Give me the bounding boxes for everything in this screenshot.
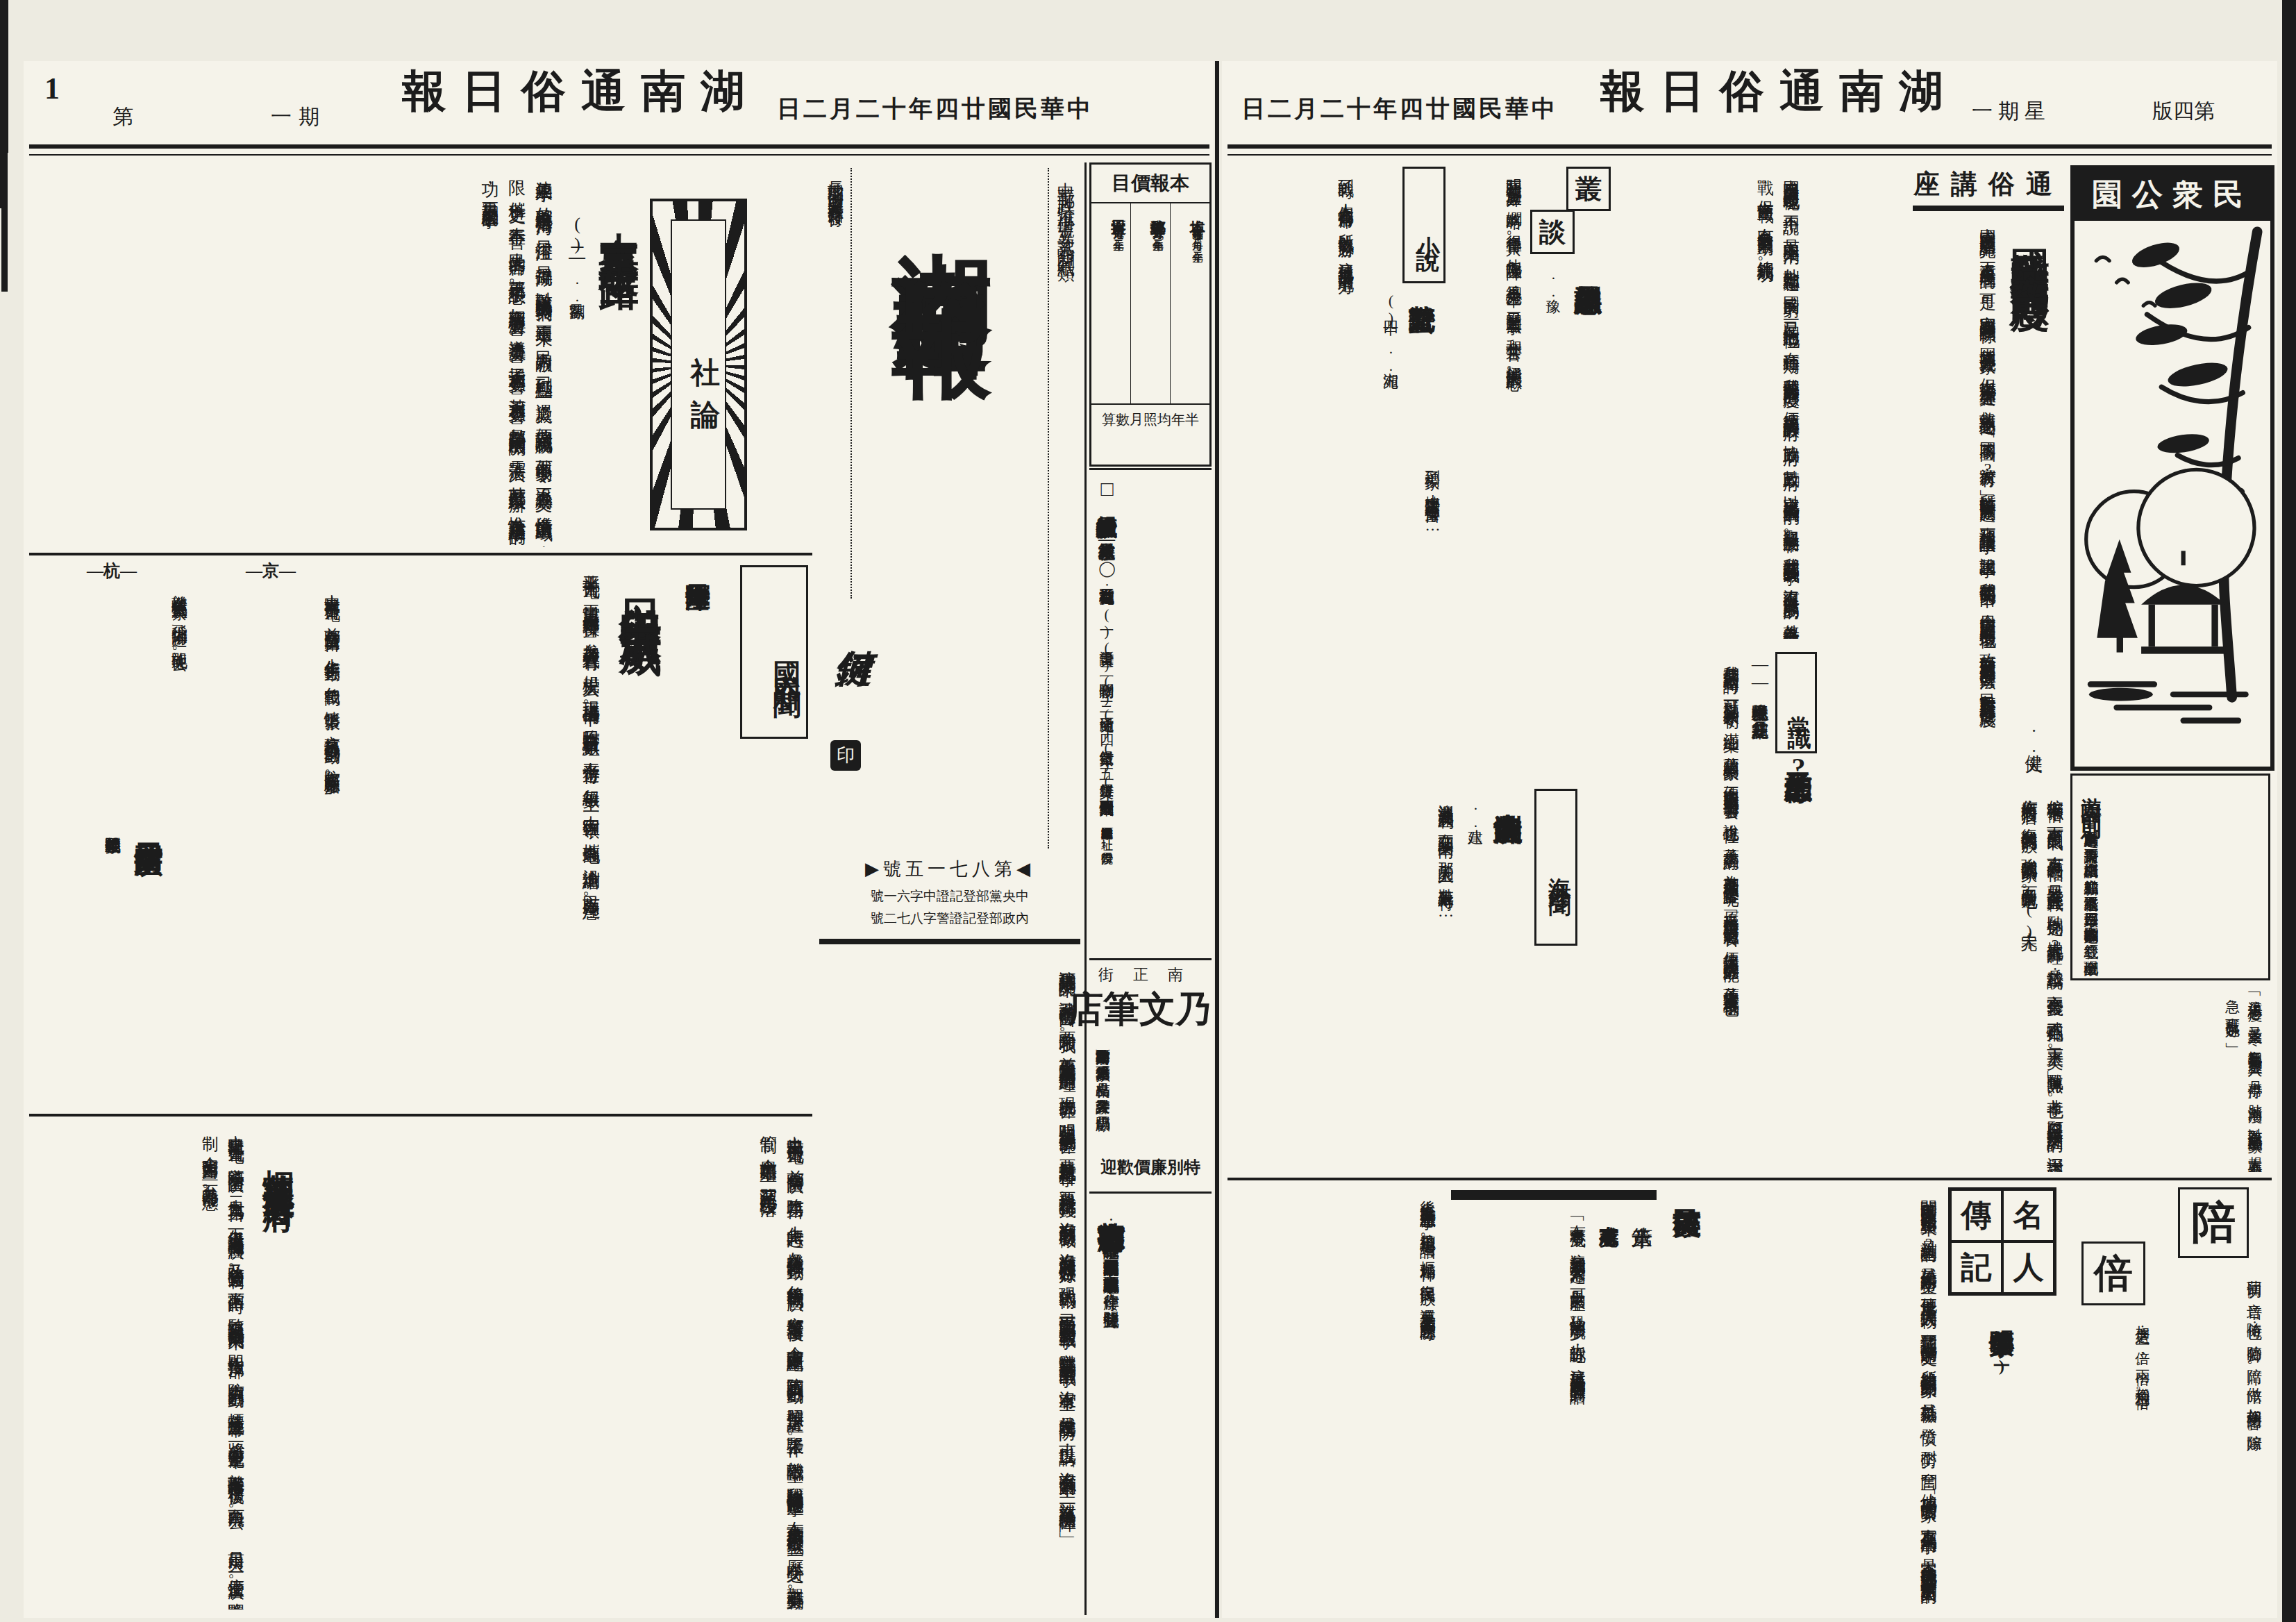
drill-subheadline: 上午作偵察行動午後戰鬥	[58, 825, 125, 1103]
editorial-author: ·劉鳳蓀·	[569, 274, 586, 309]
ad-body: 本店遷移南正街商務印書館對面,原為擴張營業起見,出品精良,久蒙各界贊許,仍承賜顧…	[1089, 1038, 1116, 1156]
price-col-value: 每月一角九分五,全年二元一角	[1153, 219, 1164, 231]
changshi-title: 葉子怎樣紅了的?	[1779, 752, 1818, 1169]
registration-line: 中央黨部登記證中字六一號	[819, 887, 1080, 905]
price-col: 本埠 零售每張銅元二枚,每月二角,全年二元	[1170, 203, 1209, 403]
dateline-label: —京—	[197, 560, 344, 582]
hero-body-continued: 後人每逢勉勵人立志做事,總是引用這句話。振起精神,復興民族,還是要靠我們大家立志…	[1243, 1187, 1440, 1610]
ad-shop-name: 乃文筆店	[1089, 985, 1212, 1034]
masthead-vertical-title: 湖南通俗日報	[873, 171, 1010, 858]
bio-section-box: 名 傳 人 記	[1948, 1187, 2056, 1296]
scan-artifact	[2282, 0, 2296, 1622]
news-item: —杭— 敵機在杭盤旋偵察,飛往太湖附近,旋即他去。	[32, 560, 192, 810]
seal-icon: 印	[830, 740, 861, 771]
postal-permit: 中華郵政特准掛號立券認為新聞紙類	[1048, 168, 1078, 848]
news-item: —京— 中央社南京二十九日電:首都防空演習第二日,上午作偵察行動,午後戰鬥,情形…	[197, 560, 344, 1108]
bio-section-char: 傳	[1950, 1189, 2002, 1241]
changshi-body: 我們只要讀到這兩句詩,就可以想見一到秋末冬初,滿山紅葉,蕭瑟幽絕的景象,便不定這…	[1593, 653, 1743, 1170]
masthead-date: 中華民國廿四年十二月二日	[1241, 93, 1558, 125]
weekday-label: 星期一	[1972, 97, 2051, 126]
changshi-kicker: ——停車坐愛楓林晚 霜葉紅如二月花——	[1749, 655, 1771, 1169]
editorial-continuation: 讓我再細細的說來,諸君自然會明白,要附和我了。首先要知道賦稅只有加重的道理:現在…	[819, 957, 1080, 1615]
novel-part: (四十)	[1382, 292, 1400, 326]
lecture-section-label: 通俗講座	[1916, 167, 2063, 202]
editorial-section-box: 社論	[650, 199, 747, 530]
masthead-date: 中華民國廿四年十二月二日	[777, 93, 1093, 125]
lecture-body: 中國家庭改造問題講完,本來還有一段尾聲的,可是,家與國有連帶的關係,固然救國必先…	[1809, 215, 2000, 776]
section-rule	[29, 553, 812, 555]
domestic-headline: 日內舉行大演習示威	[611, 565, 669, 1051]
publisher-line: 長沙理問街湖南省立民衆教育館發行	[825, 168, 852, 599]
price-col-value: 零售每張銅元二枚,每月二角,全年二元	[1192, 219, 1204, 243]
editorial-headline: 大家要早早尋生路	[592, 200, 646, 589]
masthead-title: 湖南通俗日報	[402, 61, 760, 122]
price-columns: 本埠 零售每張銅元二枚,每月二角,全年二元 外埠連郵 每月一角九分五,全年二元一…	[1091, 203, 1209, 405]
overseas-title: 澳洲土人的奇裝	[1489, 792, 1527, 1083]
price-col: 外埠連郵 每月一角九分五,全年二元一角	[1130, 203, 1170, 403]
changshi-section-label: 常識	[1775, 652, 1817, 753]
zike-gloss: 加倍之意:一倍,兩倍。俗稱利市三倍。	[2073, 1314, 2154, 1605]
page-right: 中華民國廿四年十二月二日 湖南通俗日報 星期一 第四版 民衆公園	[1222, 61, 2277, 1618]
lecture-body-continued: 中國今日是處的甚麼地位呢?不用說,是內而赤匪未消,外則強鄰相逼,國病民窮,已是一…	[1611, 167, 1804, 639]
smoke-body-text: 中央社鎮江二十九日電:京鎮區防空演習,二十九日為第二日,下午舉行遭遇敵機轟炸演習…	[227, 1122, 245, 1519]
overseas-block: 海外珍聞 澳洲土人的奇裝 ·建八· 澳洲就是澳大利亞,在亞細亞的東南,那裏的土人…	[1243, 786, 1590, 1172]
masthead-block: 中華郵政特准掛號立券認為新聞紙類 湖南通俗日報 長沙理問街湖南省立民衆教育館發行…	[819, 162, 1080, 944]
park-rules-body: 本園為民衆遊息之所,不需要長篇大論。來稿概用白話,並加新式標點;來稿不能退還,最…	[2083, 821, 2100, 964]
notice-body: 敬啓者:本廳各職員證章,業已更換銀質圓形鍍金兩面琺瑯中嵌白大數字證章,所有以前一…	[1103, 1212, 1120, 1315]
ad-health-society: □長沙衛生報社擴大組織 —徵求基本社員— ◯充當本社社員有五種利益: (一)優美…	[1089, 468, 1212, 956]
news-item-text: 敵機在杭盤旋偵察,飛往太湖附近,旋即他去。	[32, 582, 192, 797]
price-col: 逐日寄 每月二角七分,全年三元	[1091, 203, 1130, 403]
ad-pen-shop: 南正街 乃文筆店 本店遷移南正街商務印書館對面,原為擴張營業起見,出品精良,久蒙…	[1089, 958, 1212, 1189]
bio-title: 偉大發明家小傳 (一)	[1984, 1311, 2018, 1610]
hero-section-label: 民族英雄傳	[1668, 1187, 1706, 1396]
issue-number: ◀第八七一五號▶	[819, 857, 1080, 881]
overseas-section-label: 海外珍聞	[1534, 789, 1577, 946]
price-title: 本報價目	[1091, 165, 1209, 203]
lecture-headline: 國難時期我們應有的態度	[2004, 218, 2056, 718]
smoke-headline: 烟幕籠罩江蘇省府	[257, 1144, 300, 1533]
drill-headline: 防空演習第二日	[129, 822, 168, 1093]
zike-gloss: 蒲回切,音培。隨侍也:陪公卿,陪席。做陪,如俗稱陪客,陪嫁。	[2161, 1268, 2266, 1608]
ad-foot: 特別廉價歡迎	[1089, 1156, 1212, 1178]
lecture-author: ·健夫·	[2022, 721, 2046, 783]
header-rule	[29, 154, 1209, 156]
domestic-kicker: 平津日海陸空軍	[680, 565, 714, 780]
editorial-section-label: 社論	[671, 219, 726, 510]
park-rules: 遊園簡則 本園為民衆遊息之所,不需要長篇大論。來稿概用白話,並加新式標點;來稿不…	[2070, 774, 2270, 980]
section-rule	[29, 1114, 812, 1117]
smoke-body: 中央社鎮江二十九日電:京鎮區防空演習,二十九日為第二日,下午舉行遭遇敵機轟炸演習…	[32, 1122, 249, 1610]
overseas-author: ·建八·	[1465, 800, 1486, 897]
ad-education-notice: 湖南省教育廳啓事 敬啓者:本廳各職員證章,業已更換銀質圓形鍍金兩面琺瑯中嵌白大數…	[1089, 1192, 1212, 1616]
ad-body: (一)優美證書(二)贈閱刊物(三)通函研究(四)銀質徽章(五)銀質獎屏(不分界限…	[1098, 606, 1115, 806]
ad-address: 社址:長沙學院街	[1100, 830, 1114, 843]
lecture-rule	[1913, 206, 2064, 211]
ad-street: 南正街	[1089, 960, 1212, 985]
bio-body: 開闢世界以來的第一條鐵路和火車,是誰創造的?就是偉大的斯蒂文生。他是世界上一位偉…	[1708, 1187, 1941, 1610]
editorial-part-author: (二) ·劉鳳蓀·	[565, 214, 589, 533]
hero-bar	[1451, 1190, 1657, 1200]
header-rule	[1227, 154, 2272, 156]
congtan-author: ·豫·	[1543, 269, 1564, 353]
scan-artifact	[0, 0, 5, 208]
ad-subtitle: —徵求基本社員—	[1098, 512, 1116, 548]
dateline-label: —杭—	[32, 560, 192, 582]
bio-part: (一)	[1993, 1339, 2011, 1375]
novel-part-author: (四十) ·宛湘·	[1380, 292, 1401, 444]
domestic-body: 北平二十九日電:平津日軍日內在平郊舉行會操,參加者各種兵式皆有,規模宏大,現正積…	[350, 561, 604, 1108]
editorial-body: 連年的水旱,的確是沒有早治得河,早濬得江,早疏得湖,以致釀成這樣大的災禍。這兩三…	[32, 167, 557, 547]
congtan-body: 明朝時代有一個盧象昇,嫻將略,很會得帶兵。他每次臨陣,總是身先士卒;平日閒着無事…	[1451, 167, 1526, 775]
page-label: 第四版	[2152, 97, 2215, 126]
overseas-body: 澳洲就是澳大利亞,在亞細亞的東南,那裏的土人,裝束最為奇特……	[1243, 792, 1458, 1167]
ad-mark: □	[1096, 477, 1118, 500]
lecture-body-3: 偏安猶強十倍,下有可用的民氣,上有可為的領袖,只要皆能各盡其職,臥榻之側,豈容他…	[1820, 786, 2068, 1172]
changshi-block: 常識 葉子怎樣紅了的? ——停車坐愛楓林晚 霜葉紅如二月花—— 我們只要讀到這兩…	[1593, 648, 1816, 1173]
park-rules-title: 遊園簡則	[2080, 781, 2103, 809]
congtan-body-continued: 到了戰時,人人個個都肯用命,所以他每戰必勝,這就是他得力於平日的地方了。	[1243, 167, 1358, 775]
novel-author: ·宛湘·	[1382, 344, 1400, 378]
price-col-value: 每月二角七分,全年三元	[1113, 219, 1125, 231]
congtan-box-char: 談	[1530, 210, 1575, 254]
congtan-headline: 談盧象昇的忠烈	[1569, 264, 1607, 507]
drill-body: 中央社南京二十九日電:首都防空演習,昨為第二日,上午六時起,各機隊分作偵察行動,…	[322, 1122, 808, 1610]
header-tag: 第	[112, 103, 133, 131]
novel-block: 小說 蠻荒碧血記 (四十) ·宛湘· 到了楊家,小樓房間裏早已安排停當……	[1361, 167, 1448, 653]
masthead-title: 湖南通俗日報	[1600, 61, 1959, 122]
price-box: 本報價目 本埠 零售每張銅元二枚,每月二角,全年二元 外埠連郵 每月一角九分五,…	[1089, 162, 1212, 467]
ad-title: □長沙衛生報社擴大組織	[1096, 477, 1118, 500]
zike-character: 陪	[2178, 1187, 2249, 1258]
congtan-box-char: 叢	[1566, 167, 1611, 211]
editorial-part: (二)	[567, 214, 587, 254]
page-number: 1	[44, 71, 60, 106]
domestic-section-box: 國內新聞	[740, 565, 808, 739]
zike-entry: 倍 加倍之意:一倍,兩倍。俗稱利市三倍。	[2073, 1241, 2154, 1610]
zike-entry: 陪 蒲回切,音培。隨侍也:陪公卿,陪席。做陪,如俗稱陪客,陪嫁。	[2161, 1187, 2266, 1610]
domestic-section-label: 國內新聞	[742, 567, 806, 744]
calligrapher-signature: 何鍵	[828, 621, 878, 732]
header-rule	[1227, 144, 2272, 149]
park-box: 民衆公園	[2070, 165, 2274, 771]
page-left: 1 第 一期 湖南通俗日報 中華民國廿四年十二月二日 本報價目 本埠 零售每張銅…	[24, 61, 1214, 1618]
story-fragment: 「這是傷心過度,又受重寒,寒氣和鬱氣乘虛直入,月事停滯,肢漸消瘦,以致有此虛極的…	[2070, 987, 2266, 1172]
hero-body: 「有志者事竟成」,這句話我們差不多人人知道,可是它的來歷,恐怕知道的就少了。告訴…	[1451, 1211, 1590, 1610]
novel-body: 到了楊家,小樓房間裏早已安排停當……	[1361, 458, 1444, 646]
news-item-text: 中央社南京二十九日電:首都防空演習第二日,上午作偵察行動,午後戰鬥,情形緊張,京…	[197, 582, 344, 1096]
bio-section-char: 名	[2002, 1189, 2054, 1241]
bio-section-char: 人	[2002, 1241, 2054, 1294]
section-rule	[1227, 1178, 2272, 1180]
registration-line: 內政部登記證警字八七二號	[819, 910, 1080, 928]
zike-character: 倍	[2081, 1241, 2145, 1305]
park-title: 民衆公園	[2075, 169, 2270, 221]
price-footer: 半年均照月數算	[1091, 405, 1209, 429]
hero-motto: 有志者事竟成	[1595, 1211, 1622, 1391]
header-tag: 一期	[271, 103, 326, 131]
novel-section-label: 小說	[1402, 167, 1446, 283]
newspaper-spread: 1 第 一期 湖南通俗日報 中華民國廿四年十二月二日 本報價目 本埠 零售每張銅…	[0, 0, 2296, 1622]
bio-section-char: 記	[1950, 1241, 2002, 1294]
ads-column: 本報價目 本埠 零售每張銅元二枚,每月二角,全年二元 外埠連郵 每月一角九分五,…	[1084, 162, 1213, 1615]
hero-chapter: 第十八章	[1627, 1211, 1656, 1343]
park-illustration	[2075, 221, 2270, 739]
page-gutter	[1215, 61, 1219, 1618]
ad-lead: ◯充當本社社員有五種利益:	[1098, 560, 1116, 594]
header-rule	[29, 144, 1209, 149]
